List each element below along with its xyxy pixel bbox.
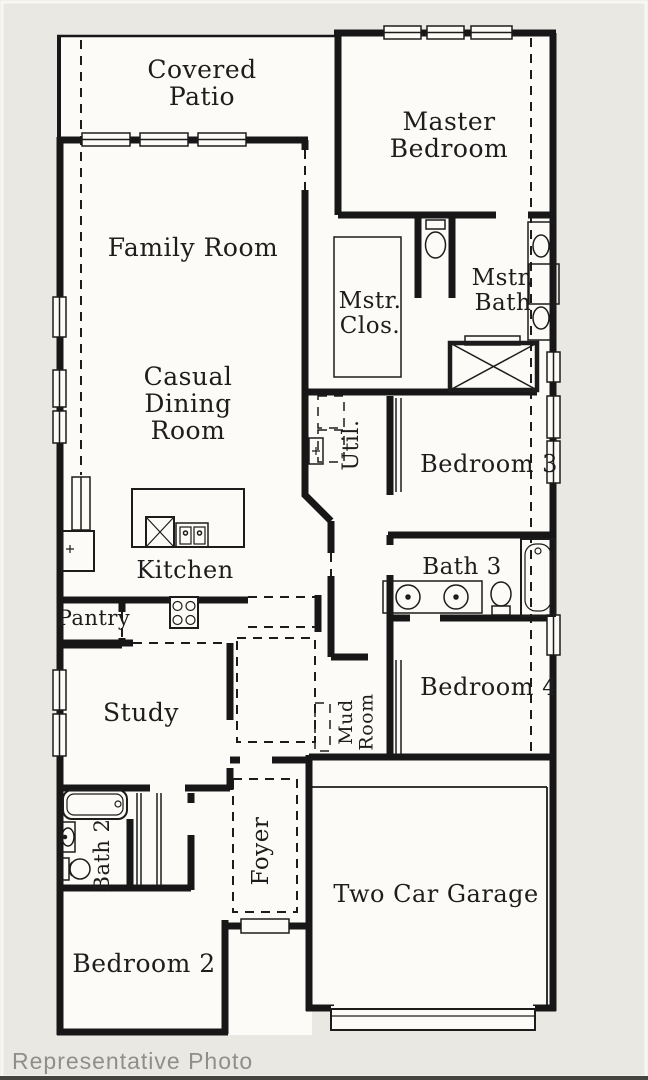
family-room-windows [82,133,246,146]
study-label: Study [103,698,179,727]
bottom-bar [0,1076,648,1080]
master-closet-label: Mstr.Clos. [339,288,402,339]
bedroom-2-label: Bedroom 2 [72,949,215,978]
caption-text: Representative Photo [12,1048,253,1074]
garage-door [331,1006,535,1030]
family-room-label: Family Room [108,233,278,262]
mud-room-label: MudRoom [335,693,378,750]
bedroom-3-label: Bedroom 3 [420,450,558,478]
range-fixture [170,597,198,628]
bath-2-label: Bath 2 [90,819,114,892]
bedroom-4-label: Bedroom 4 [420,673,558,701]
floorplan-image: CoveredPatioFamily RoomMasterBedroomMstr… [0,0,648,1080]
casual-dining-room-label: CasualDiningRoom [144,362,233,445]
utility-label: Util. [339,420,364,471]
pantry-label: Pantry [58,606,131,630]
bath-3-label: Bath 3 [422,554,502,580]
island-sink-icon [146,517,174,547]
entry-door [241,919,289,933]
foyer-label: Foyer [248,817,274,886]
two-car-garage-label: Two Car Garage [333,880,538,908]
master-bath-label: Mstr.Bath [472,265,535,316]
master-bedroom-windows [384,26,512,39]
kitchen-label: Kitchen [136,556,233,584]
master-bedroom-label: MasterBedroom [390,107,508,163]
